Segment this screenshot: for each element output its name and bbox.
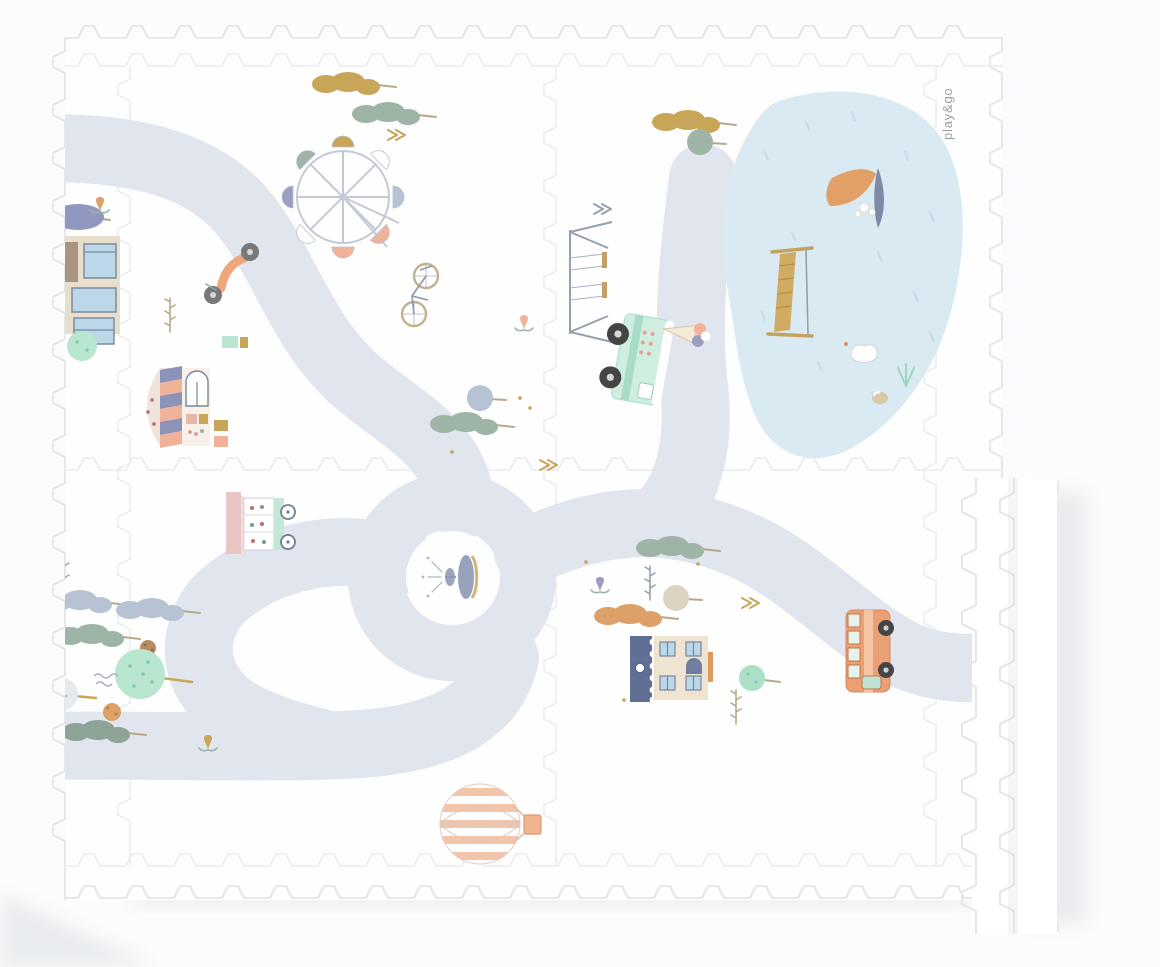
mat-edge-top	[65, 26, 1003, 38]
bus	[846, 610, 894, 692]
playmat-scene: play&go	[0, 0, 1160, 967]
townhouse	[630, 636, 713, 703]
windshield	[862, 676, 881, 689]
house	[58, 236, 120, 344]
tree-mint-small	[67, 331, 97, 361]
door-awning	[708, 652, 713, 682]
border-edge-strips	[962, 478, 1088, 934]
mat-edge-left	[53, 38, 65, 900]
brand-logo: play&go	[940, 87, 955, 140]
balloon-basket	[524, 815, 541, 834]
arched-door	[686, 658, 702, 674]
playmat-product-photo: play&go	[0, 0, 1160, 967]
ferris-wheel	[282, 136, 404, 258]
kiosk-awning-stripes	[160, 366, 182, 448]
duck	[872, 392, 888, 404]
bush-orange	[103, 703, 121, 721]
swing-seat	[602, 282, 607, 298]
swing-seat	[602, 252, 607, 268]
